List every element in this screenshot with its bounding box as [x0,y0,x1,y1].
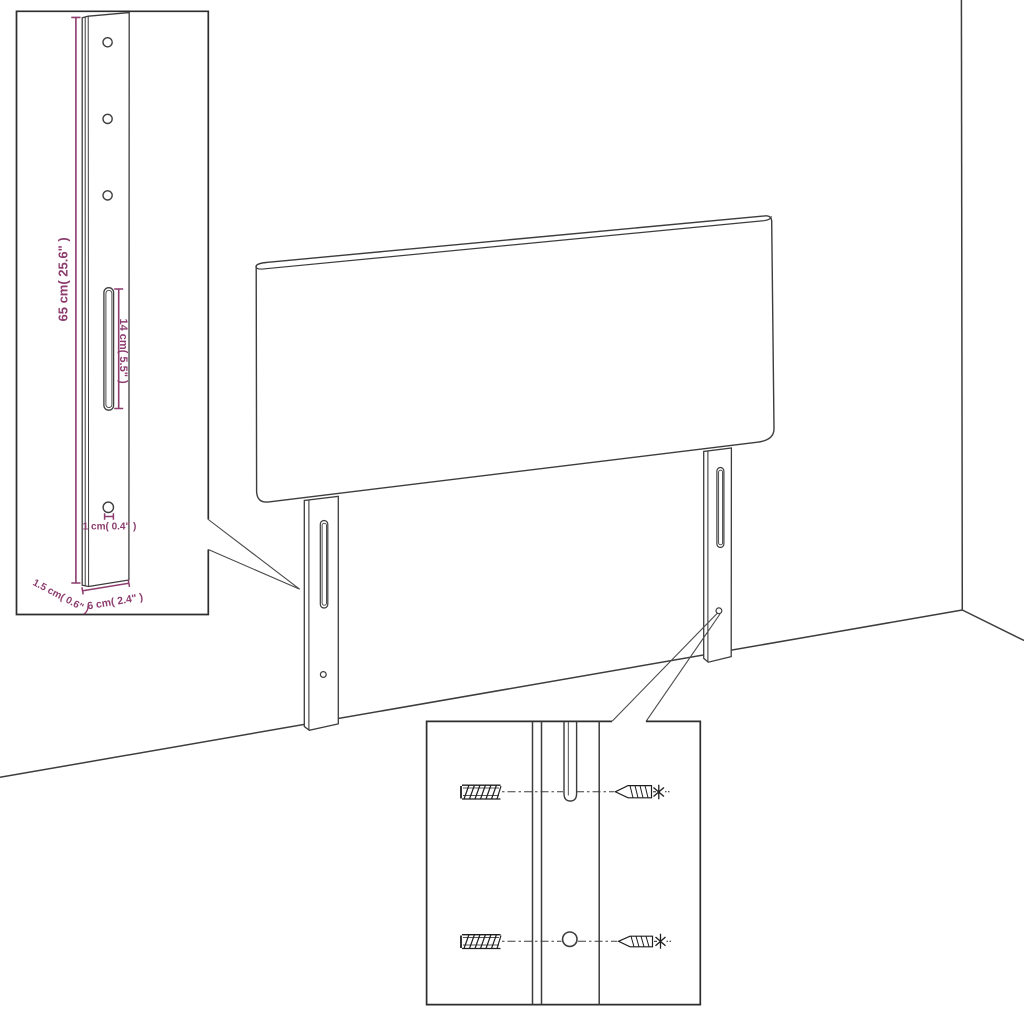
svg-text:1 cm( 0.4" ): 1 cm( 0.4" ) [83,521,137,532]
svg-text:65 cm( 25.6" ): 65 cm( 25.6" ) [56,237,71,321]
svg-text:14 cm( 5.5" ): 14 cm( 5.5" ) [117,319,129,384]
